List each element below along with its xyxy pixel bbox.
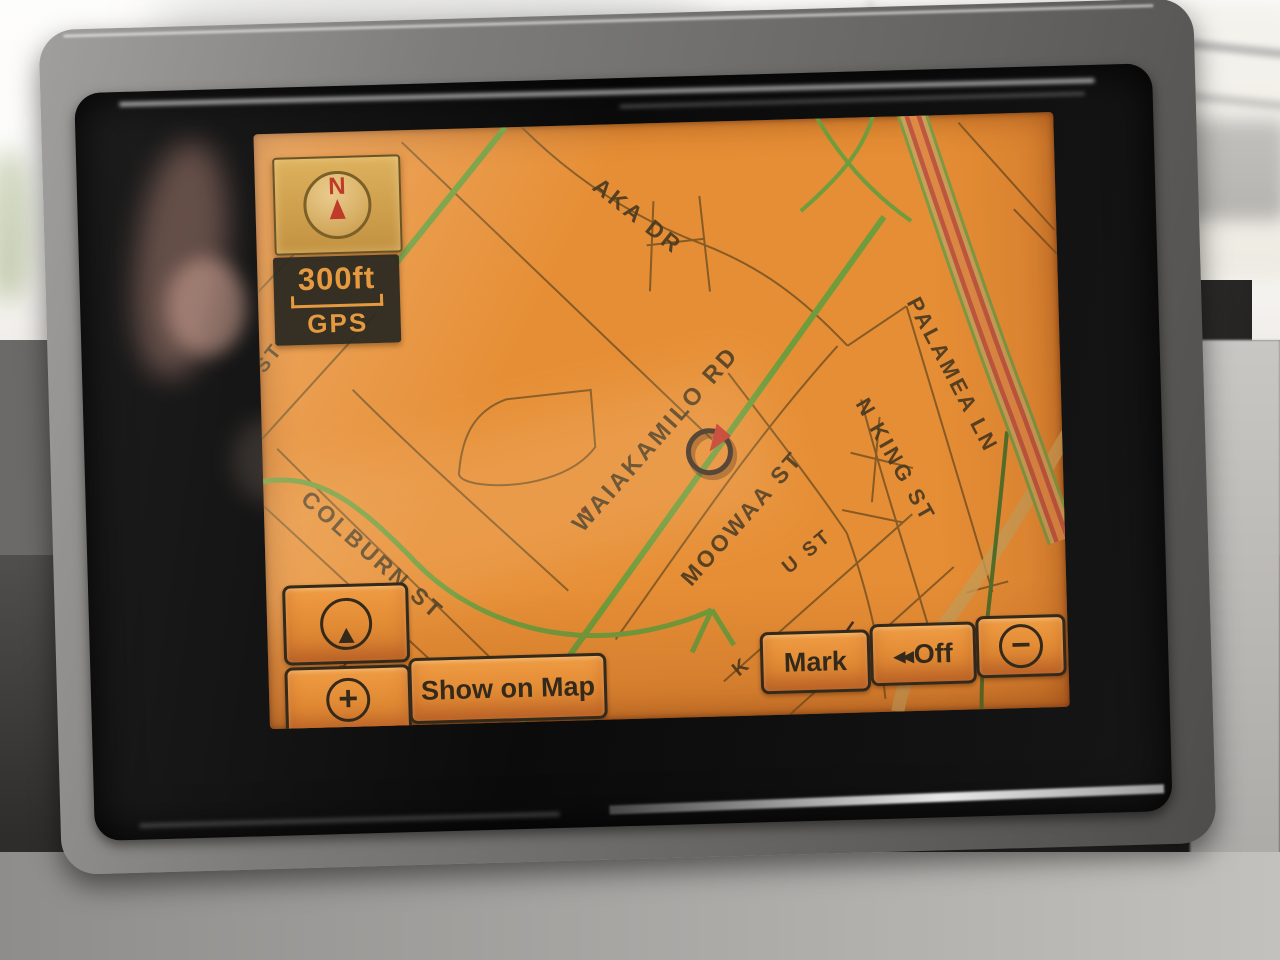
car-dashboard-photo: AKA DR WAIAKAMILO RD MOOWAA ST COLBURN S… — [0, 0, 1280, 960]
scale-bracket-icon — [291, 294, 383, 309]
street-label-aka-dr: AKA DR — [588, 172, 688, 259]
compass-button[interactable]: N — [272, 154, 403, 256]
navigation-head-unit: AKA DR WAIAKAMILO RD MOOWAA ST COLBURN S… — [38, 0, 1216, 875]
plus-icon: + — [326, 677, 371, 722]
mark-button[interactable]: Mark — [760, 629, 872, 694]
bezel-reflection-bottom — [609, 784, 1164, 814]
street-label-fragment-u-st: U ST — [778, 525, 836, 579]
compass-dial: N — [302, 170, 372, 240]
heading-up-icon — [319, 597, 372, 650]
gps-status: GPS — [307, 309, 369, 337]
rewind-chevrons-icon: ◀◀ — [893, 647, 911, 665]
voice-off-button[interactable]: ◀◀ Off — [869, 621, 977, 686]
street-label-n-king-st: N KING ST — [851, 394, 941, 527]
show-on-map-button[interactable]: Show on Map — [408, 653, 608, 725]
compass-north-label: N — [328, 176, 346, 198]
nav-touchscreen[interactable]: AKA DR WAIAKAMILO RD MOOWAA ST COLBURN S… — [253, 112, 1069, 729]
mark-label: Mark — [783, 645, 847, 678]
map-orientation-button[interactable] — [282, 582, 410, 665]
zoom-out-button[interactable]: − — [975, 614, 1067, 678]
off-label: Off — [913, 638, 953, 670]
map-scale-indicator: 300ft GPS — [273, 254, 401, 345]
compass-needle-icon — [329, 199, 346, 219]
bezel-reflection-bottom-2 — [140, 812, 560, 828]
bezel-reflection-top-2 — [620, 92, 1085, 108]
scale-distance: 300ft — [297, 263, 375, 295]
zoom-in-button[interactable]: + — [284, 664, 412, 729]
show-on-map-label: Show on Map — [421, 671, 596, 707]
minus-icon: − — [998, 623, 1043, 668]
